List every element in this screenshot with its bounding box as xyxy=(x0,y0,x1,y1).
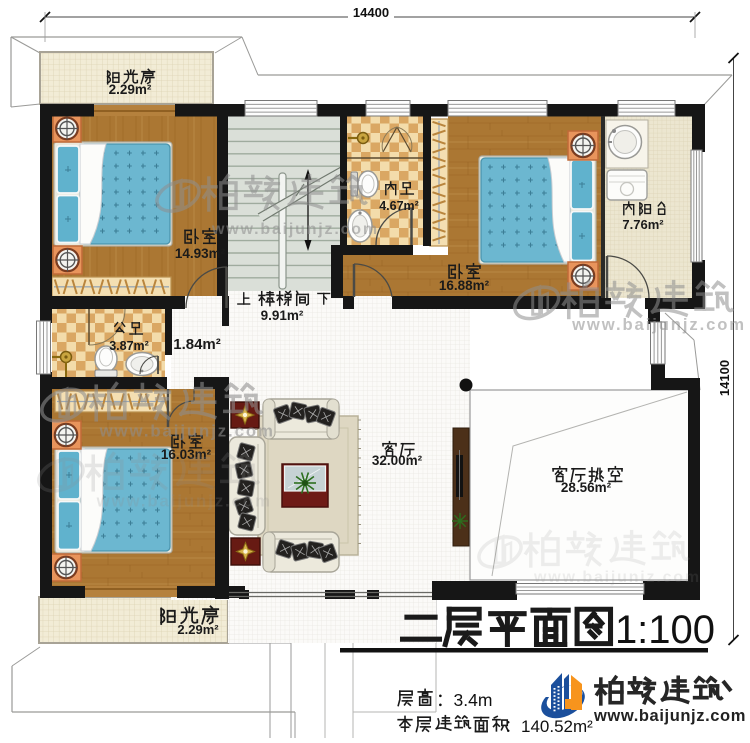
svg-text:www.baijunjz.com: www.baijunjz.com xyxy=(533,569,701,586)
svg-text:4.67m²: 4.67m² xyxy=(379,199,419,213)
svg-text:14100: 14100 xyxy=(717,360,732,396)
svg-text:www.baijunjz.com: www.baijunjz.com xyxy=(211,221,379,238)
svg-text:2.29m²: 2.29m² xyxy=(109,82,152,97)
svg-text:：140.52m²: ：140.52m² xyxy=(504,717,593,736)
svg-text:：3.4m: ：3.4m xyxy=(436,690,492,710)
svg-text:www.baijunjz.com: www.baijunjz.com xyxy=(571,315,746,334)
svg-text:9.91m²: 9.91m² xyxy=(261,308,304,323)
svg-text:14.93m²: 14.93m² xyxy=(175,246,226,261)
svg-text:1:100: 1:100 xyxy=(615,608,715,652)
svg-text:3.87m²: 3.87m² xyxy=(109,339,149,353)
svg-text:2.29m²: 2.29m² xyxy=(177,622,219,637)
svg-text:28.56m²: 28.56m² xyxy=(561,480,612,495)
svg-text:16.88m²: 16.88m² xyxy=(439,278,490,293)
svg-text:14400: 14400 xyxy=(353,5,389,20)
svg-text:7.76m²: 7.76m² xyxy=(622,217,664,232)
svg-text:1.84m²: 1.84m² xyxy=(173,336,221,353)
svg-text:32.00m²: 32.00m² xyxy=(372,453,423,468)
svg-text:www.baijunjz.com: www.baijunjz.com xyxy=(96,492,272,511)
svg-text:www.baijunjz.com: www.baijunjz.com xyxy=(593,707,746,725)
svg-text:www.baijunjz.com: www.baijunjz.com xyxy=(99,422,275,441)
